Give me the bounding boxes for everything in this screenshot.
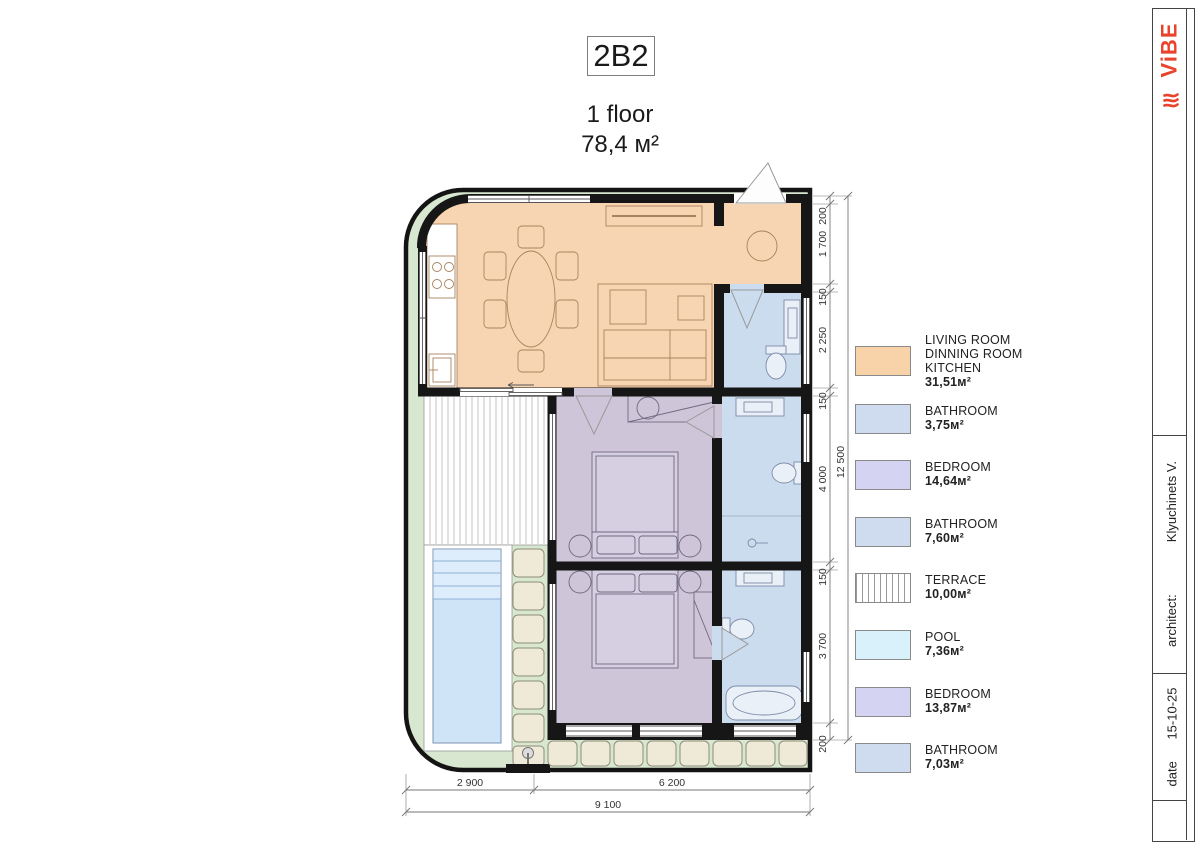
legend-label: BATHROOM7,60м² [925,517,998,545]
date-cell: date 15-10-25 [1157,674,1187,801]
legend-label: BATHROOM7,03м² [925,743,998,771]
dimension-text: 150 [817,288,829,306]
floor-label: 1 floor [520,101,720,129]
dimension-text: 4 000 [817,466,829,492]
dimension-text: 200 [817,735,829,753]
legend-item: BEDROOM13,87м² [855,687,991,717]
terrace [424,396,548,545]
legend-swatch [855,404,911,434]
legend-item: BATHROOM7,03м² [855,743,998,773]
legend-item: TERRACE10,00м² [855,573,986,603]
architect-value: Klyuchinets V. [1164,461,1179,542]
room-bathroom-2 [717,392,807,568]
legend-item: LIVING ROOMDINNING ROOMKITCHEN31,51м² [855,333,1023,389]
architect-label: architect: [1164,594,1179,647]
total-area-label: 78,4 м² [520,131,720,159]
unit-code-box: 2B2 [587,36,655,76]
legend-swatch [855,460,911,490]
legend-area: 3,75м² [925,418,998,432]
outdoor-shower [506,746,550,773]
legend-swatch [855,517,911,547]
legend-label: BATHROOM3,75м² [925,404,998,432]
entrance-door [736,163,786,203]
legend-area: 31,51м² [925,375,1023,389]
legend-area: 7,03м² [925,757,998,771]
legend-item: BATHROOM3,75м² [855,404,998,434]
legend-area: 7,36м² [925,644,964,658]
dimension-text: 1 700 [817,231,829,257]
legend-item: BEDROOM14,64м² [855,460,991,490]
date-value: 15-10-25 [1164,688,1179,740]
legend-item: BATHROOM7,60м² [855,517,998,547]
dimension-text: 6 200 [659,777,685,789]
dimension-text: 150 [817,392,829,410]
legend-item: POOL7,36м² [855,630,964,660]
legend-label: BEDROOM13,87м² [925,687,991,715]
logo-text: ViBE [1157,23,1183,78]
dimension-text: 9 100 [595,799,621,811]
unit-code: 2B2 [593,38,648,74]
legend: LIVING ROOMDINNING ROOMKITCHEN31,51м²BAT… [855,0,1095,849]
dimension-text: 150 [817,568,829,586]
legend-swatch [855,630,911,660]
legend-swatch [855,743,911,773]
legend-label: POOL7,36м² [925,630,964,658]
date-label: date [1164,761,1179,786]
legend-swatch [855,687,911,717]
brand-logo: ViBE [1153,9,1187,436]
legend-label: BEDROOM14,64м² [925,460,991,488]
legend-area: 14,64м² [925,474,991,488]
legend-area: 7,60м² [925,531,998,545]
legend-swatch [855,346,911,376]
architect-cell: architect: Klyuchinets V. [1156,435,1186,673]
kitchen-furniture [427,224,457,388]
pool-area [424,545,512,751]
dimension-text: 2 900 [457,777,483,789]
legend-label: LIVING ROOMDINNING ROOMKITCHEN31,51м² [925,333,1023,389]
dimension-text: 3 700 [817,633,829,659]
dimension-text: 200 [817,207,829,225]
dimension-text: 2 250 [817,327,829,353]
dimension-text: 12 500 [835,446,847,478]
legend-swatch [855,573,911,603]
legend-label: TERRACE10,00м² [925,573,986,601]
legend-area: 10,00м² [925,587,986,601]
legend-area: 13,87м² [925,701,991,715]
flame-icon [1158,87,1182,111]
